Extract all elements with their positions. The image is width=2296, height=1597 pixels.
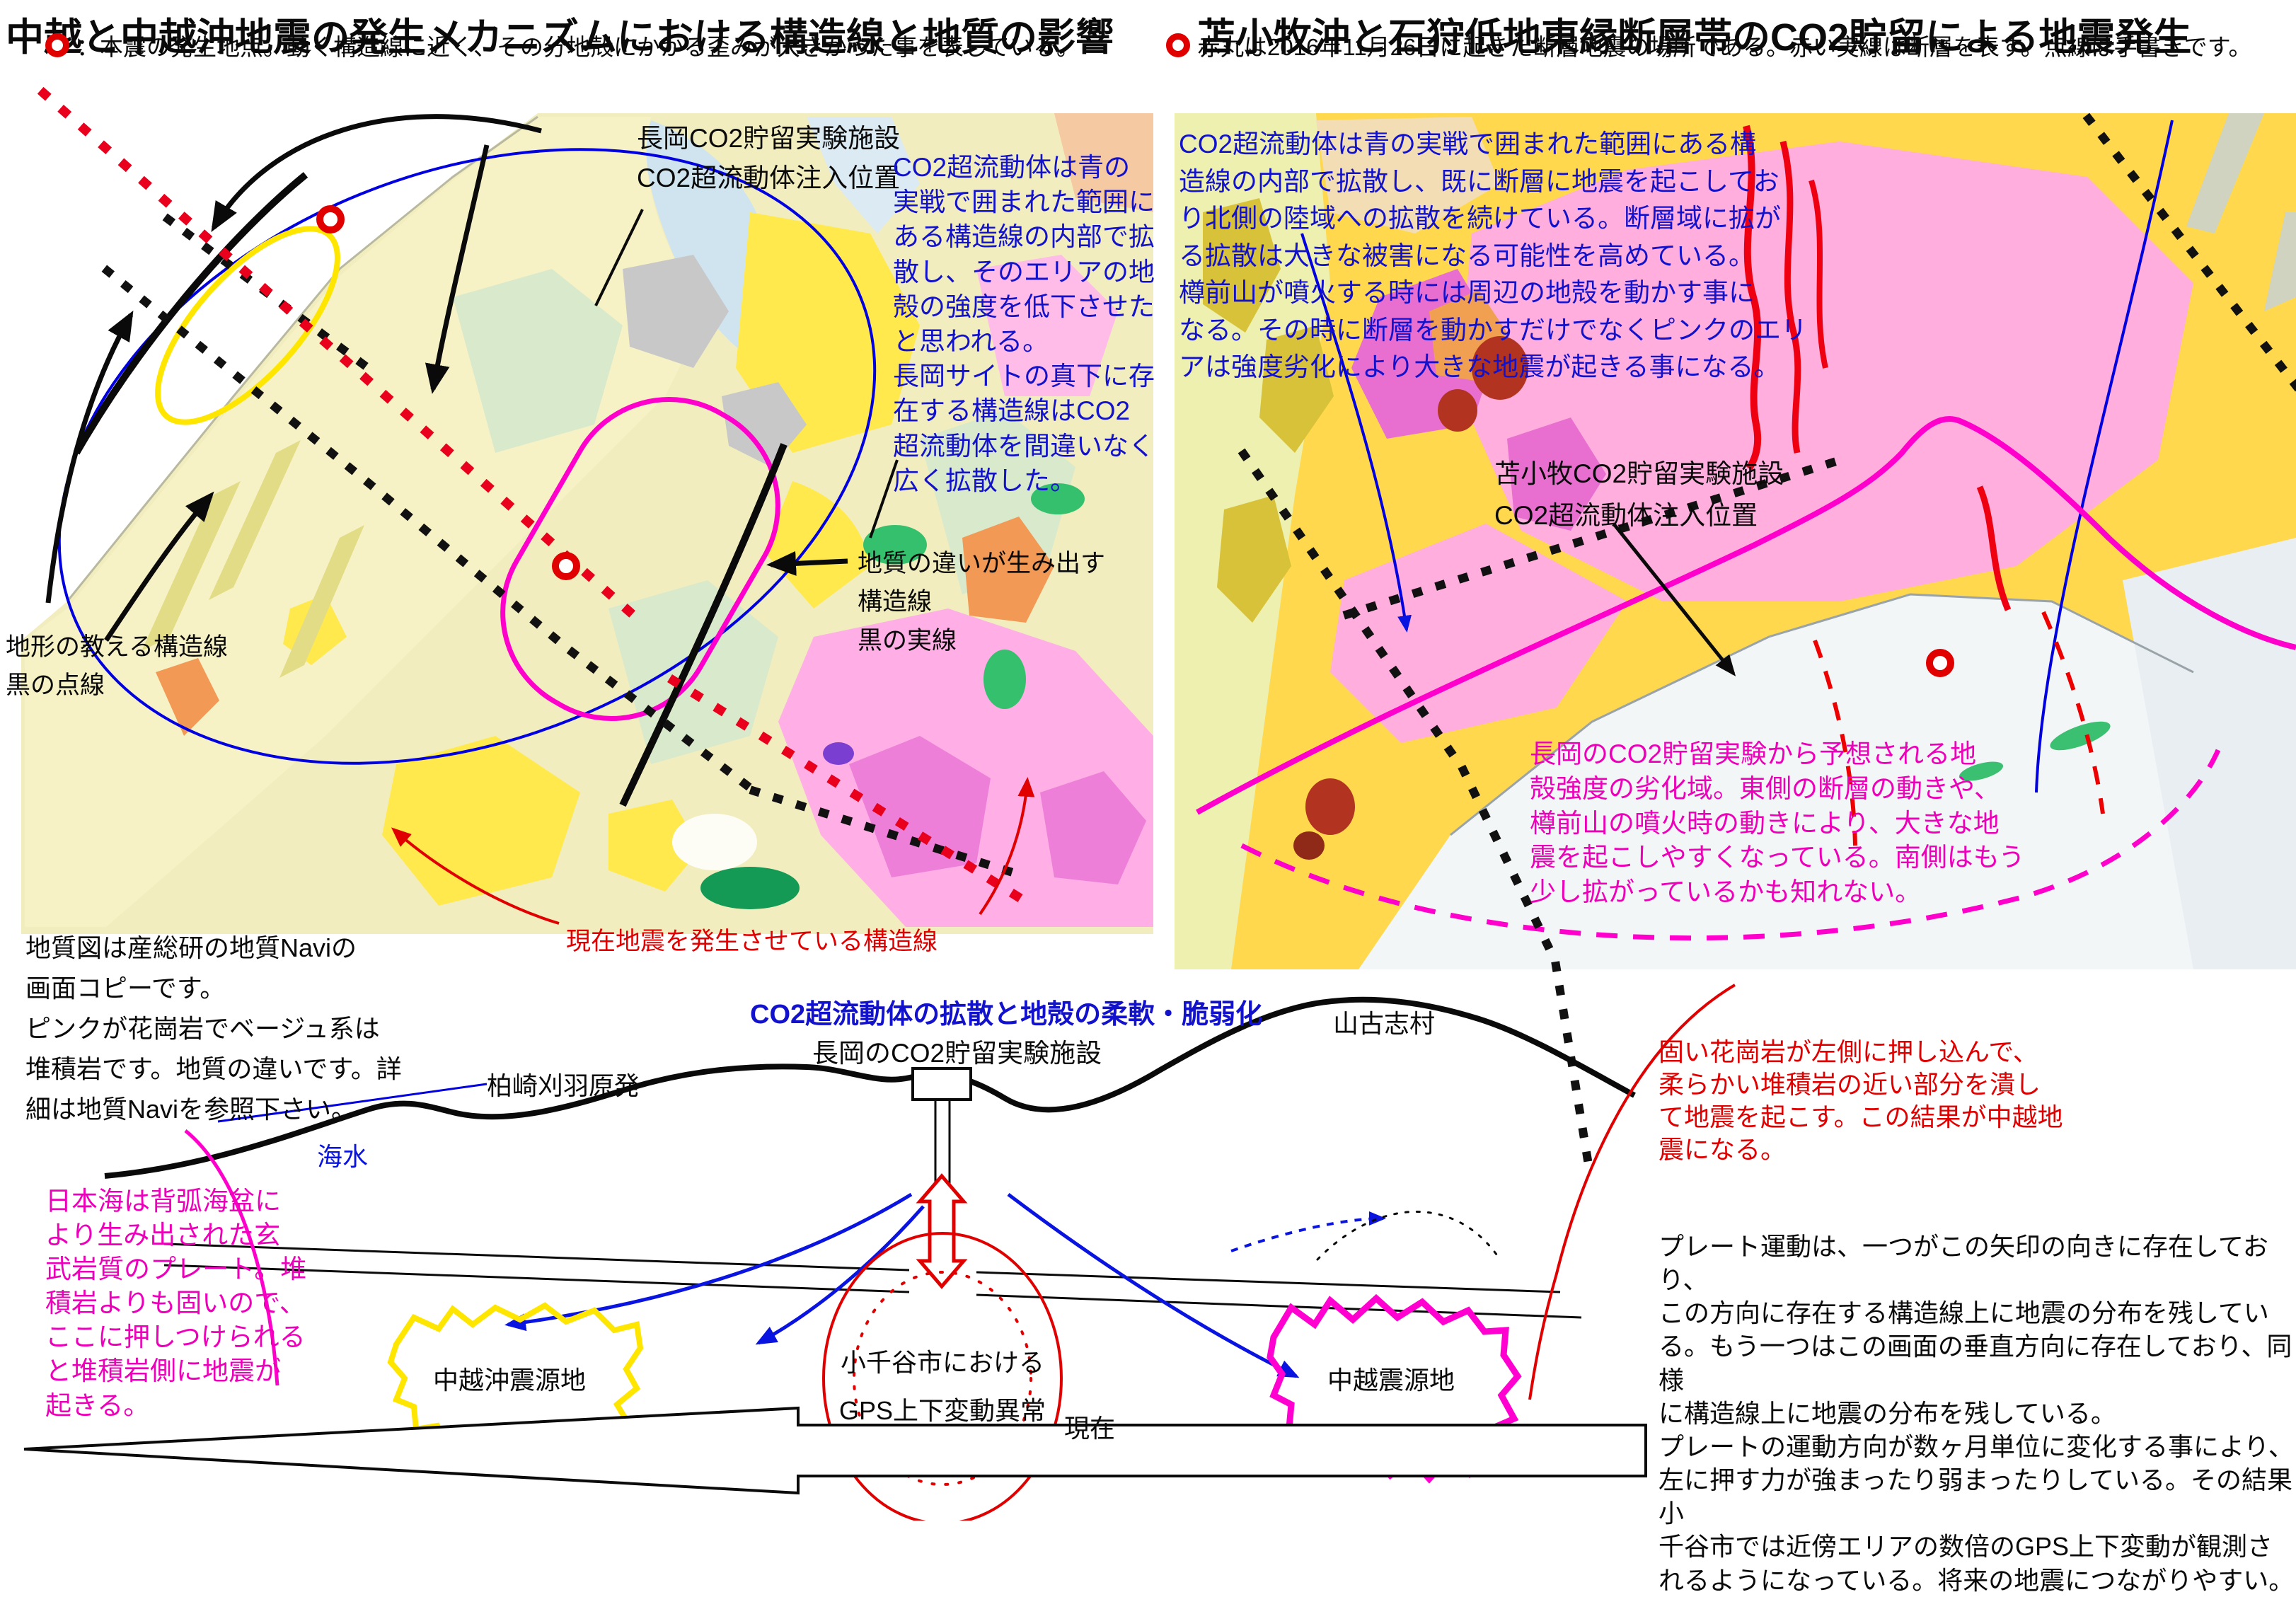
- blue-diffusion-arrow-1: [508, 1194, 911, 1325]
- geology-line-label: 地質の違いが生み出す 構造線 黒の実線: [858, 545, 1105, 660]
- solid-line-pointer-arrow: [771, 561, 848, 565]
- facility-leader-line: [596, 209, 642, 306]
- dotted-uplift-hill: [1317, 1212, 1500, 1260]
- cross-section-heading-black: 長岡のCO2貯留実験施設: [812, 1032, 1102, 1070]
- red-updown-arrow: [920, 1176, 964, 1286]
- ojiya-gps-label: 小千谷市における GPS上下変動異常: [821, 1339, 1064, 1436]
- strata-line-2b: [976, 1295, 1581, 1318]
- red-fault-line-4: [1980, 487, 2008, 610]
- magenta-weak-zone-outline: [466, 362, 816, 756]
- left-legend-text: ：本震の発生地点。動く構造線に近く、その分地殻にかかる歪みが大きかった事を表して…: [76, 28, 1080, 62]
- active-fault-label: 現在地震を発生させている構造線: [566, 921, 938, 957]
- epicenter-marker-chuetsu: [555, 555, 577, 577]
- red-dotted-line-2: [674, 681, 1034, 907]
- figure-canvas: 中越と中越沖地震の発生メカニズムにおける構造線と地質の影響 苫小牧沖と石狩低地東…: [0, 0, 2296, 1521]
- right-legend: 赤丸は2016年11月26日に起きた断層地震の場所である。赤い実線は断層を表す。…: [1166, 28, 2251, 62]
- basalt-note: 日本海は背弧海盆に より生み出された玄 武岩質のプレート。堆 積岩よりも固いので…: [45, 1184, 306, 1423]
- yamakoshi-label: 山古志村: [1333, 1003, 1435, 1040]
- left-legend: ：本震の発生地点。動く構造線に近く、その分地殻にかかる歪みが大きかった事を表して…: [45, 28, 1080, 62]
- granite-note: 固い花崗岩が左側に押し込んで、 柔らかい堆積岩の近い部分を潰し て地震を起こす。…: [1658, 1036, 2063, 1166]
- chuetsu-label: 中越震源地: [1327, 1360, 1455, 1397]
- kashiwazaki-label: 柏崎刈羽原発: [487, 1066, 640, 1102]
- chuetsu-oki-label: 中越沖震源地: [433, 1360, 586, 1397]
- blue-dotted-arrow: [1231, 1218, 1383, 1251]
- cross-section-heading-blue: CO2超流動体の拡散と地殻の柔軟・脆弱化: [750, 992, 1262, 1031]
- strata-line-1b: [976, 1272, 1560, 1292]
- curved-arrow-2: [433, 145, 487, 389]
- present-label: 現在: [1064, 1408, 1115, 1445]
- source-note: 地質図は産総研の地質Naviの 画面コピーです。 ピンクが花崗岩でベージュ系は …: [25, 928, 402, 1129]
- black-dotted-line-2: [754, 791, 1010, 872]
- terrain-line-label: 地形の教える構造線 黒の点線: [6, 628, 228, 705]
- blue-diffusion-arrow-2: [758, 1206, 923, 1343]
- injection-facility-box: [913, 1068, 971, 1100]
- red-dashed-arc-right: [2043, 612, 2103, 814]
- seawater-label: 海水: [317, 1136, 368, 1173]
- black-structural-line-2: [623, 444, 784, 805]
- epicenter-ring-icon: [1166, 33, 1190, 57]
- right-co2-note: CO2超流動体は青の実戦で囲まれた範囲にある構 造線の内部で拡散し、既に断層に地…: [1179, 126, 1807, 386]
- red-fault-line-3: [1811, 180, 1825, 368]
- black-dotted-line-1: [108, 271, 754, 791]
- right-legend-text: 赤丸は2016年11月26日に起きた断層地震の場所である。赤い実線は断層を表す。…: [1197, 28, 2251, 62]
- curved-arrow-4: [106, 495, 211, 640]
- epicenter-ring-icon: [45, 33, 69, 57]
- weakened-zone-note: 長岡のCO2貯留実験から予想される地 殻強度の劣化域。東側の断層の動きや、 樽前…: [1530, 737, 2025, 910]
- nagaoka-facility-label: 長岡CO2貯留実験施設 CO2超流動体注入位置: [637, 119, 900, 197]
- epicenter-marker-chuetsu-oki: [320, 209, 341, 230]
- active-fault-arrow-left: [393, 829, 559, 923]
- blue-boundary-curve-right: [2036, 120, 2172, 792]
- tomakomai-facility-label: 苫小牧CO2貯留実験施設 CO2超流動体注入位置: [1494, 453, 1784, 536]
- epicenter-marker-2016: [1929, 652, 1951, 674]
- left-co2-note: CO2超流動体は青の 実戦で囲まれた範囲に ある構造線の内部で拡 散し、そのエリ…: [893, 150, 1155, 498]
- plate-note: プレート運動は、一つがこの矢印の向きに存在しており、 この方向に存在する構造線上…: [1658, 1230, 2296, 1597]
